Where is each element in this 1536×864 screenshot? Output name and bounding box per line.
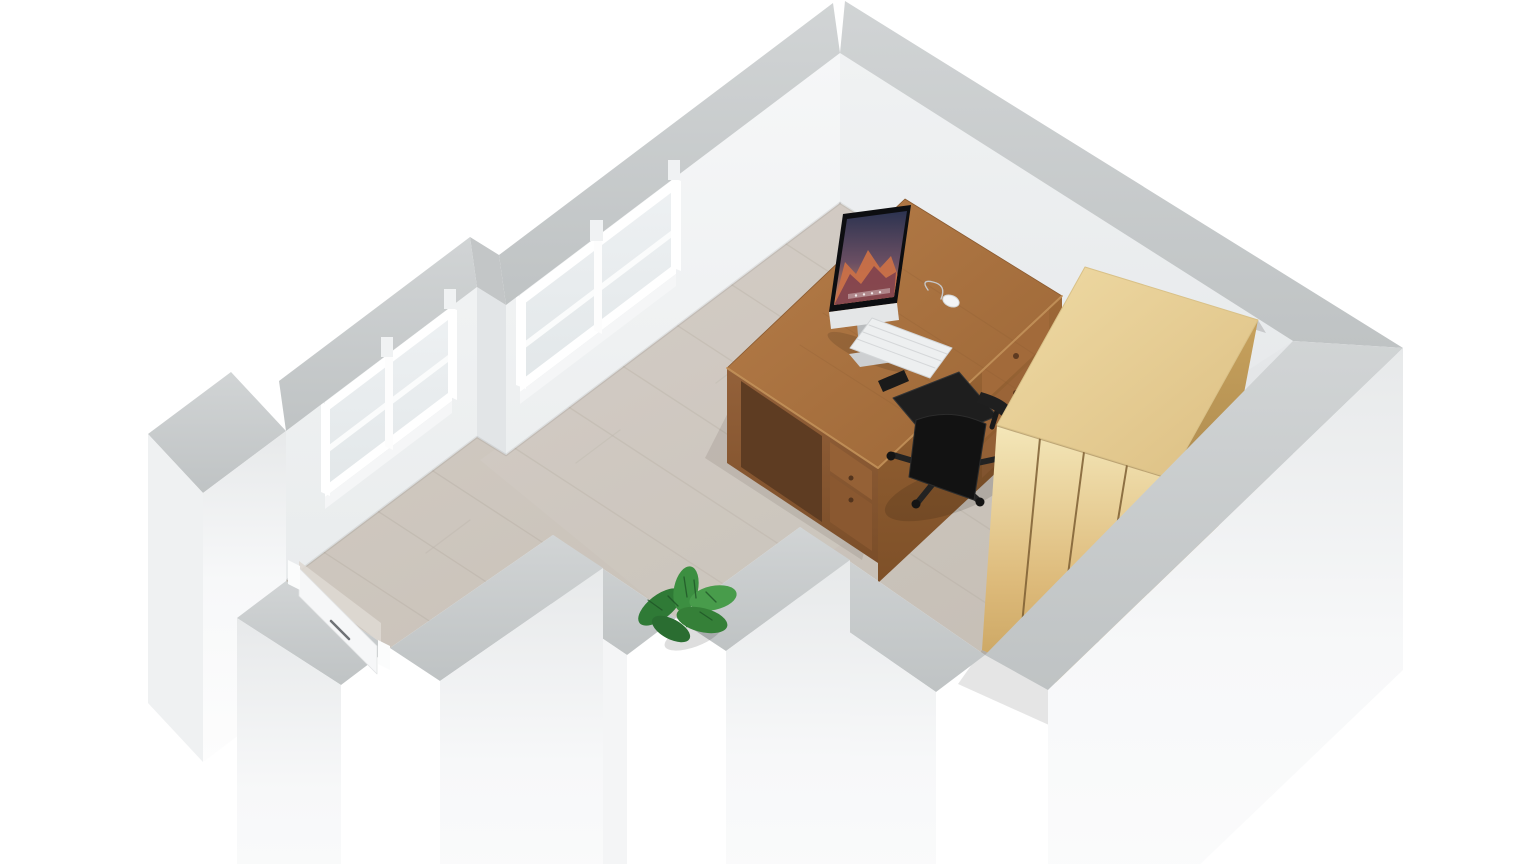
window1-jamb-b: [516, 295, 526, 389]
window1-jamb-a: [671, 177, 681, 271]
drawer-knob: [1013, 353, 1019, 359]
chair-caster: [912, 500, 921, 509]
window1-mullion: [594, 238, 602, 334]
window2-jamb-a: [448, 306, 457, 400]
window1-frame-nub: [668, 160, 680, 180]
imac-dock-dot: [855, 294, 857, 296]
drawer-knob: [849, 476, 854, 481]
imac-dock-dot: [879, 291, 881, 293]
imac-dock-dot: [871, 292, 873, 294]
wall-topleft-jog-face: [477, 287, 506, 455]
floorplan-scene: [0, 0, 1536, 864]
chair-caster: [887, 452, 896, 461]
chair-caster: [976, 498, 985, 507]
window2-mullion: [385, 354, 393, 450]
window2-jamb-b: [321, 402, 330, 496]
window2-frame-nub: [381, 337, 393, 357]
floorplan-3d-render: [0, 0, 1536, 864]
imac-dock-dot: [863, 293, 865, 295]
window2-frame-nub: [444, 289, 456, 309]
window1-frame-nub: [590, 220, 603, 241]
drawer-knob: [849, 498, 854, 503]
